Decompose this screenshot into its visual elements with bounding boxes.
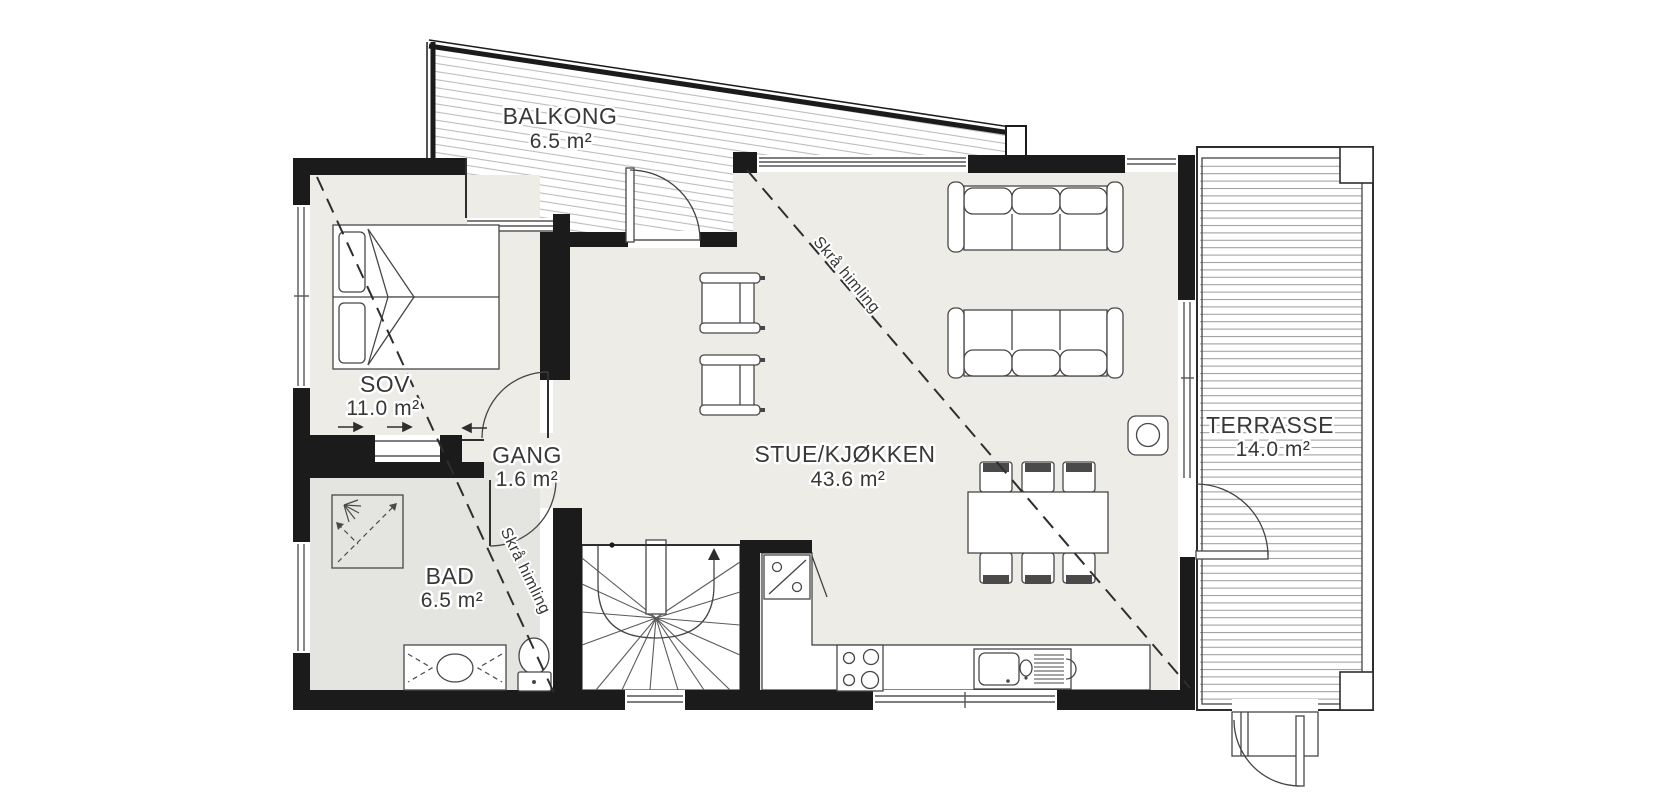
living-right-window <box>1180 300 1195 480</box>
chair-icon <box>980 553 1012 584</box>
bottom-wall <box>293 690 1195 710</box>
toilet-icon <box>518 638 551 691</box>
living-area: 43.6 m² <box>811 468 886 491</box>
bed-icon <box>333 225 499 369</box>
terrace-corner-bottom <box>1340 672 1373 710</box>
floor-plan-page: BALKONG 6.5 m² SOV 11.0 m² GANG 1.6 m² B… <box>0 0 1670 800</box>
chair-icon <box>1022 553 1054 584</box>
terrace-exit-gap <box>1232 699 1318 712</box>
sofa-icon <box>948 182 1123 252</box>
terrace-corner-top <box>1340 147 1373 183</box>
bath-window <box>293 542 310 653</box>
living-top-window-right <box>1125 155 1178 169</box>
bath-area: 6.5 m² <box>421 589 484 612</box>
dining-table <box>968 492 1108 553</box>
cooktop-icon <box>837 645 883 691</box>
hall-area: 1.6 m² <box>496 468 559 491</box>
bedroom-window <box>293 205 310 388</box>
dining-set-icon <box>968 462 1108 584</box>
terrace <box>1197 147 1373 786</box>
stair-window <box>625 690 685 710</box>
kitchen-window <box>873 690 1057 710</box>
chair-icon <box>1022 462 1054 492</box>
terrace-area: 14.0 m² <box>1236 438 1311 461</box>
balcony-railing-step <box>1006 126 1026 156</box>
vanity-icon <box>404 645 506 690</box>
bedroom-label: SOV <box>360 371 410 397</box>
chair-icon <box>980 462 1012 492</box>
sofa-icon <box>948 308 1123 378</box>
terrace-label: TERRASSE <box>1206 412 1334 438</box>
floor-plan-drawing: BALKONG 6.5 m² SOV 11.0 m² GANG 1.6 m² B… <box>0 0 1670 800</box>
chair-icon <box>1063 462 1095 492</box>
living-label: STUE/KJØKKEN <box>754 441 935 467</box>
balcony-area: 6.5 m² <box>530 130 593 153</box>
bath-label: BAD <box>426 563 475 589</box>
terrace-exit-stair <box>1232 712 1318 756</box>
terrace-gate-leaf <box>1296 716 1304 786</box>
wood-stove-icon <box>1128 416 1168 455</box>
living-top-window-left <box>757 155 968 169</box>
bedroom-area: 11.0 m² <box>346 397 419 420</box>
hall-label: GANG <box>492 442 562 468</box>
stair-newel <box>646 540 666 614</box>
balcony-label: BALKONG <box>503 103 618 129</box>
